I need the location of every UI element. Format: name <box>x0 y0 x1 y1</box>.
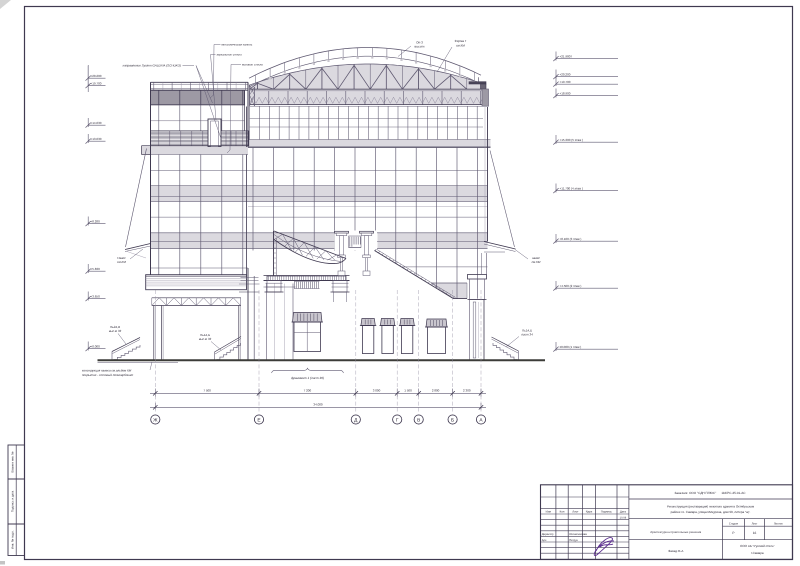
svg-text:+20.200: +20.200 <box>91 74 102 78</box>
svg-text:+4.500 (2 этаж ): +4.500 (2 этаж ) <box>560 284 582 288</box>
svg-text:2 800: 2 800 <box>432 389 440 393</box>
svg-text:матовое стекло: матовое стекло <box>242 63 263 67</box>
svg-text:+8.100 (3 этаж ): +8.100 (3 этаж ) <box>560 237 582 241</box>
svg-text:Лист: Лист <box>752 522 759 525</box>
svg-text:2 300: 2 300 <box>463 389 471 393</box>
svg-text:Р: Р <box>732 531 734 535</box>
svg-text:Арх.: Арх. <box>542 539 548 542</box>
svg-text:7 500: 7 500 <box>203 389 211 393</box>
svg-text:высотн: высотн <box>415 45 425 49</box>
svg-text:Е: Е <box>257 417 260 423</box>
svg-text:Ферма Г: Ферма Г <box>455 39 467 43</box>
svg-text:±0.000 (1 этаж ): ±0.000 (1 этаж ) <box>560 345 582 349</box>
svg-text:Стадия: Стадия <box>729 522 739 525</box>
svg-text:+19.700: +19.700 <box>91 82 102 86</box>
svg-text:металлическая панель: металлическая панель <box>222 43 253 47</box>
svg-text:Изм: Изм <box>546 510 551 514</box>
svg-text:Взамен инв. №: Взамен инв. № <box>11 451 15 473</box>
svg-text:+15.300 (5 этаж ): +15.300 (5 этаж ) <box>560 138 584 142</box>
svg-text:районе го. Самара, улица Мичур: районе го. Самара, улица Мичурина, дом 9… <box>671 510 751 514</box>
svg-text:10.08: 10.08 <box>620 516 627 519</box>
svg-text:1 500: 1 500 <box>404 389 412 393</box>
svg-text:фрагмент 1 (лист 36): фрагмент 1 (лист 36) <box>291 376 324 380</box>
svg-text:+8.280: +8.280 <box>91 220 101 224</box>
svg-text:см.КМ: см.КМ <box>532 260 541 264</box>
svg-text:7 200: 7 200 <box>304 389 312 393</box>
svg-text:Листов: Листов <box>774 522 783 525</box>
svg-text:Архитектурно-строительные реше: Архитектурно-строительные решения <box>650 530 701 534</box>
svg-text:+21.9807: +21.9807 <box>560 55 573 59</box>
svg-text:+20.200: +20.200 <box>560 73 571 77</box>
svg-text:34.000: 34.000 <box>313 403 323 407</box>
svg-text:лист 34: лист 34 <box>520 333 533 337</box>
svg-text:+18.900: +18.900 <box>560 92 571 96</box>
svg-text:В: В <box>417 417 420 423</box>
svg-text:Заказчик: ООО "СДН ПЛЮС": Заказчик: ООО "СДН ПЛЮС" 116/РС-35.01-АС <box>675 491 747 495</box>
svg-text:Реконструкция (реставрация) не: Реконструкция (реставрация) нежилого зда… <box>667 505 754 509</box>
svg-text:Nдок: Nдок <box>586 510 593 514</box>
svg-text:выс.м 33: выс.м 33 <box>109 329 122 333</box>
svg-text:Ж: Ж <box>153 417 158 423</box>
svg-text:зеркальное стекло: зеркальное стекло <box>217 53 243 57</box>
svg-text:Кол: Кол <box>560 510 565 514</box>
svg-text:+5.830: +5.830 <box>91 267 101 271</box>
svg-text:Подпись и дата: Подпись и дата <box>11 490 15 512</box>
svg-text:Директор: Директор <box>542 533 554 536</box>
svg-text:+13.630: +13.630 <box>91 137 102 141</box>
svg-text:Б: Б <box>451 417 454 423</box>
svg-text:3 000: 3 000 <box>373 389 381 393</box>
svg-text:Косметкалева: Косметкалева <box>569 533 587 536</box>
svg-text:направление System GALERIA (SC: направление System GALERIA (SCHUKO) <box>123 64 181 68</box>
svg-text:Петрук: Петрук <box>569 539 578 542</box>
svg-text:ООО АБ "Русский стиль": ООО АБ "Русский стиль" <box>740 544 775 548</box>
svg-text:г.Самара: г.Самара <box>751 551 764 555</box>
svg-text:покрытие - сотовый поликарбона: покрытие - сотовый поликарбонат <box>82 373 134 377</box>
svg-text:+14.630: +14.630 <box>91 121 102 125</box>
svg-text:выс.м 33: выс.м 33 <box>199 337 212 341</box>
svg-text:Инв. № подл.: Инв. № подл. <box>11 530 15 549</box>
svg-text:Подпись: Подпись <box>601 510 613 514</box>
svg-text:Г: Г <box>396 417 399 423</box>
svg-text:+0.000: +0.000 <box>91 345 101 349</box>
svg-text:+3.650: +3.650 <box>91 295 101 299</box>
svg-text:Дата: Дата <box>620 510 627 514</box>
svg-text:Лист: Лист <box>572 510 579 514</box>
svg-text:Фасад Ж-А: Фасад Ж-А <box>668 549 683 553</box>
svg-text:16: 16 <box>753 531 757 535</box>
svg-text:конструкция навеса см.альбом К: конструкция навеса см.альбом КМ <box>82 369 132 373</box>
svg-text:+19.700: +19.700 <box>560 80 571 84</box>
svg-text:см.КМ: см.КМ <box>456 44 465 48</box>
svg-text:см.КМ: см.КМ <box>117 260 126 264</box>
svg-text:+11.700 (4 этаж ): +11.700 (4 этаж ) <box>560 187 583 191</box>
